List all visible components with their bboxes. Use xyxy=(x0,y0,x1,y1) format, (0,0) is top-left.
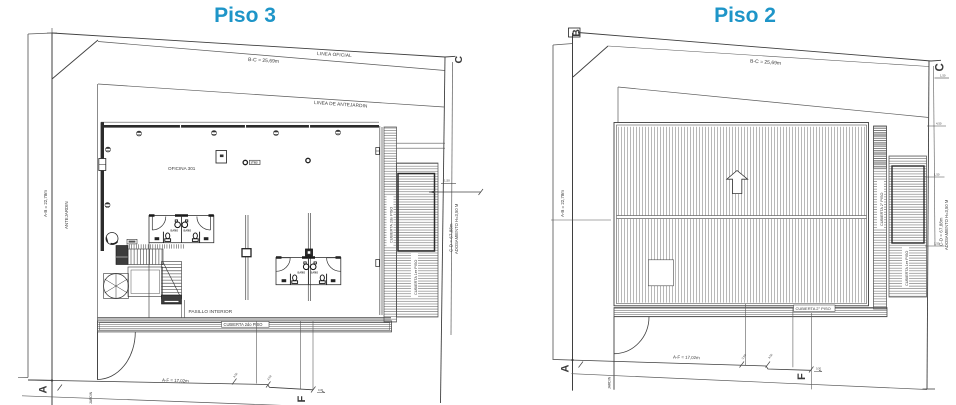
svg-text:C-D = 67,88m: C-D = 67,88m xyxy=(449,223,454,252)
svg-text:ADOSAMIENTO H=3,50 M: ADOSAMIENTO H=3,50 M xyxy=(454,203,459,254)
svg-text:F: F xyxy=(796,373,808,380)
svg-text:BAÑO: BAÑO xyxy=(298,270,306,275)
svg-text:C-D = 67,88m: C-D = 67,88m xyxy=(939,217,944,246)
svg-text:A-F = 17,02m: A-F = 17,02m xyxy=(162,378,189,384)
svg-text:ADOSAMIENTO H=3,50 M: ADOSAMIENTO H=3,50 M xyxy=(944,199,949,250)
svg-text:BAÑO: BAÑO xyxy=(184,228,192,233)
svg-text:C: C xyxy=(453,56,465,64)
svg-text:JARDIN: JARDIN xyxy=(89,391,93,404)
svg-text:C: C xyxy=(935,63,947,71)
svg-text:A: A xyxy=(560,365,572,373)
svg-text:A-F = 17,02m: A-F = 17,02m xyxy=(673,355,700,361)
svg-text:3,50: 3,50 xyxy=(767,352,774,359)
svg-text:JARDIN: JARDIN xyxy=(608,376,612,389)
svg-text:Piso 3: Piso 3 xyxy=(214,4,276,27)
svg-text:BAÑO: BAÑO xyxy=(171,228,179,233)
svg-text:A-B = 22,78m: A-B = 22,78m xyxy=(560,190,565,217)
svg-text:3,50: 3,50 xyxy=(741,353,748,360)
svg-text:B-C = 25,69m: B-C = 25,69m xyxy=(248,57,279,65)
svg-text:B-C = 25,69m: B-C = 25,69m xyxy=(750,59,781,67)
svg-text:3,50: 3,50 xyxy=(232,371,239,378)
svg-text:BAÑO: BAÑO xyxy=(311,270,319,275)
svg-text:4,50: 4,50 xyxy=(936,122,942,126)
svg-text:1TB2: 1TB2 xyxy=(250,161,258,165)
svg-text:Piso 2: Piso 2 xyxy=(714,4,776,27)
svg-text:LINEA OFICIAL: LINEA OFICIAL xyxy=(317,51,352,58)
svg-text:CUBIERTA 2° PISO: CUBIERTA 2° PISO xyxy=(796,306,831,311)
svg-text:0,30: 0,30 xyxy=(816,367,822,371)
svg-text:3,50: 3,50 xyxy=(266,374,273,381)
svg-text:A: A xyxy=(38,386,50,394)
svg-text:CUBIERTA 1er PISO: CUBIERTA 1er PISO xyxy=(414,260,418,295)
svg-text:1,50: 1,50 xyxy=(940,74,946,78)
svg-text:CUBIERTA 2° PISO: CUBIERTA 2° PISO xyxy=(880,193,884,226)
svg-text:1,50: 1,50 xyxy=(444,179,450,183)
svg-text:PASILLO INTERIOR: PASILLO INTERIOR xyxy=(189,309,233,314)
svg-text:0,30: 0,30 xyxy=(318,388,324,392)
svg-text:F: F xyxy=(296,396,308,403)
svg-text:OFICINA 301: OFICINA 301 xyxy=(168,166,196,171)
svg-text:ANTEJARDIN: ANTEJARDIN xyxy=(64,201,69,229)
svg-text:CUBIERTA 2do PISO: CUBIERTA 2do PISO xyxy=(390,207,394,243)
svg-text:CUBIERTA 1er PISO: CUBIERTA 1er PISO xyxy=(905,251,909,286)
svg-text:1,50: 1,50 xyxy=(934,173,940,177)
svg-text:A-B = 22,78m: A-B = 22,78m xyxy=(43,190,48,217)
